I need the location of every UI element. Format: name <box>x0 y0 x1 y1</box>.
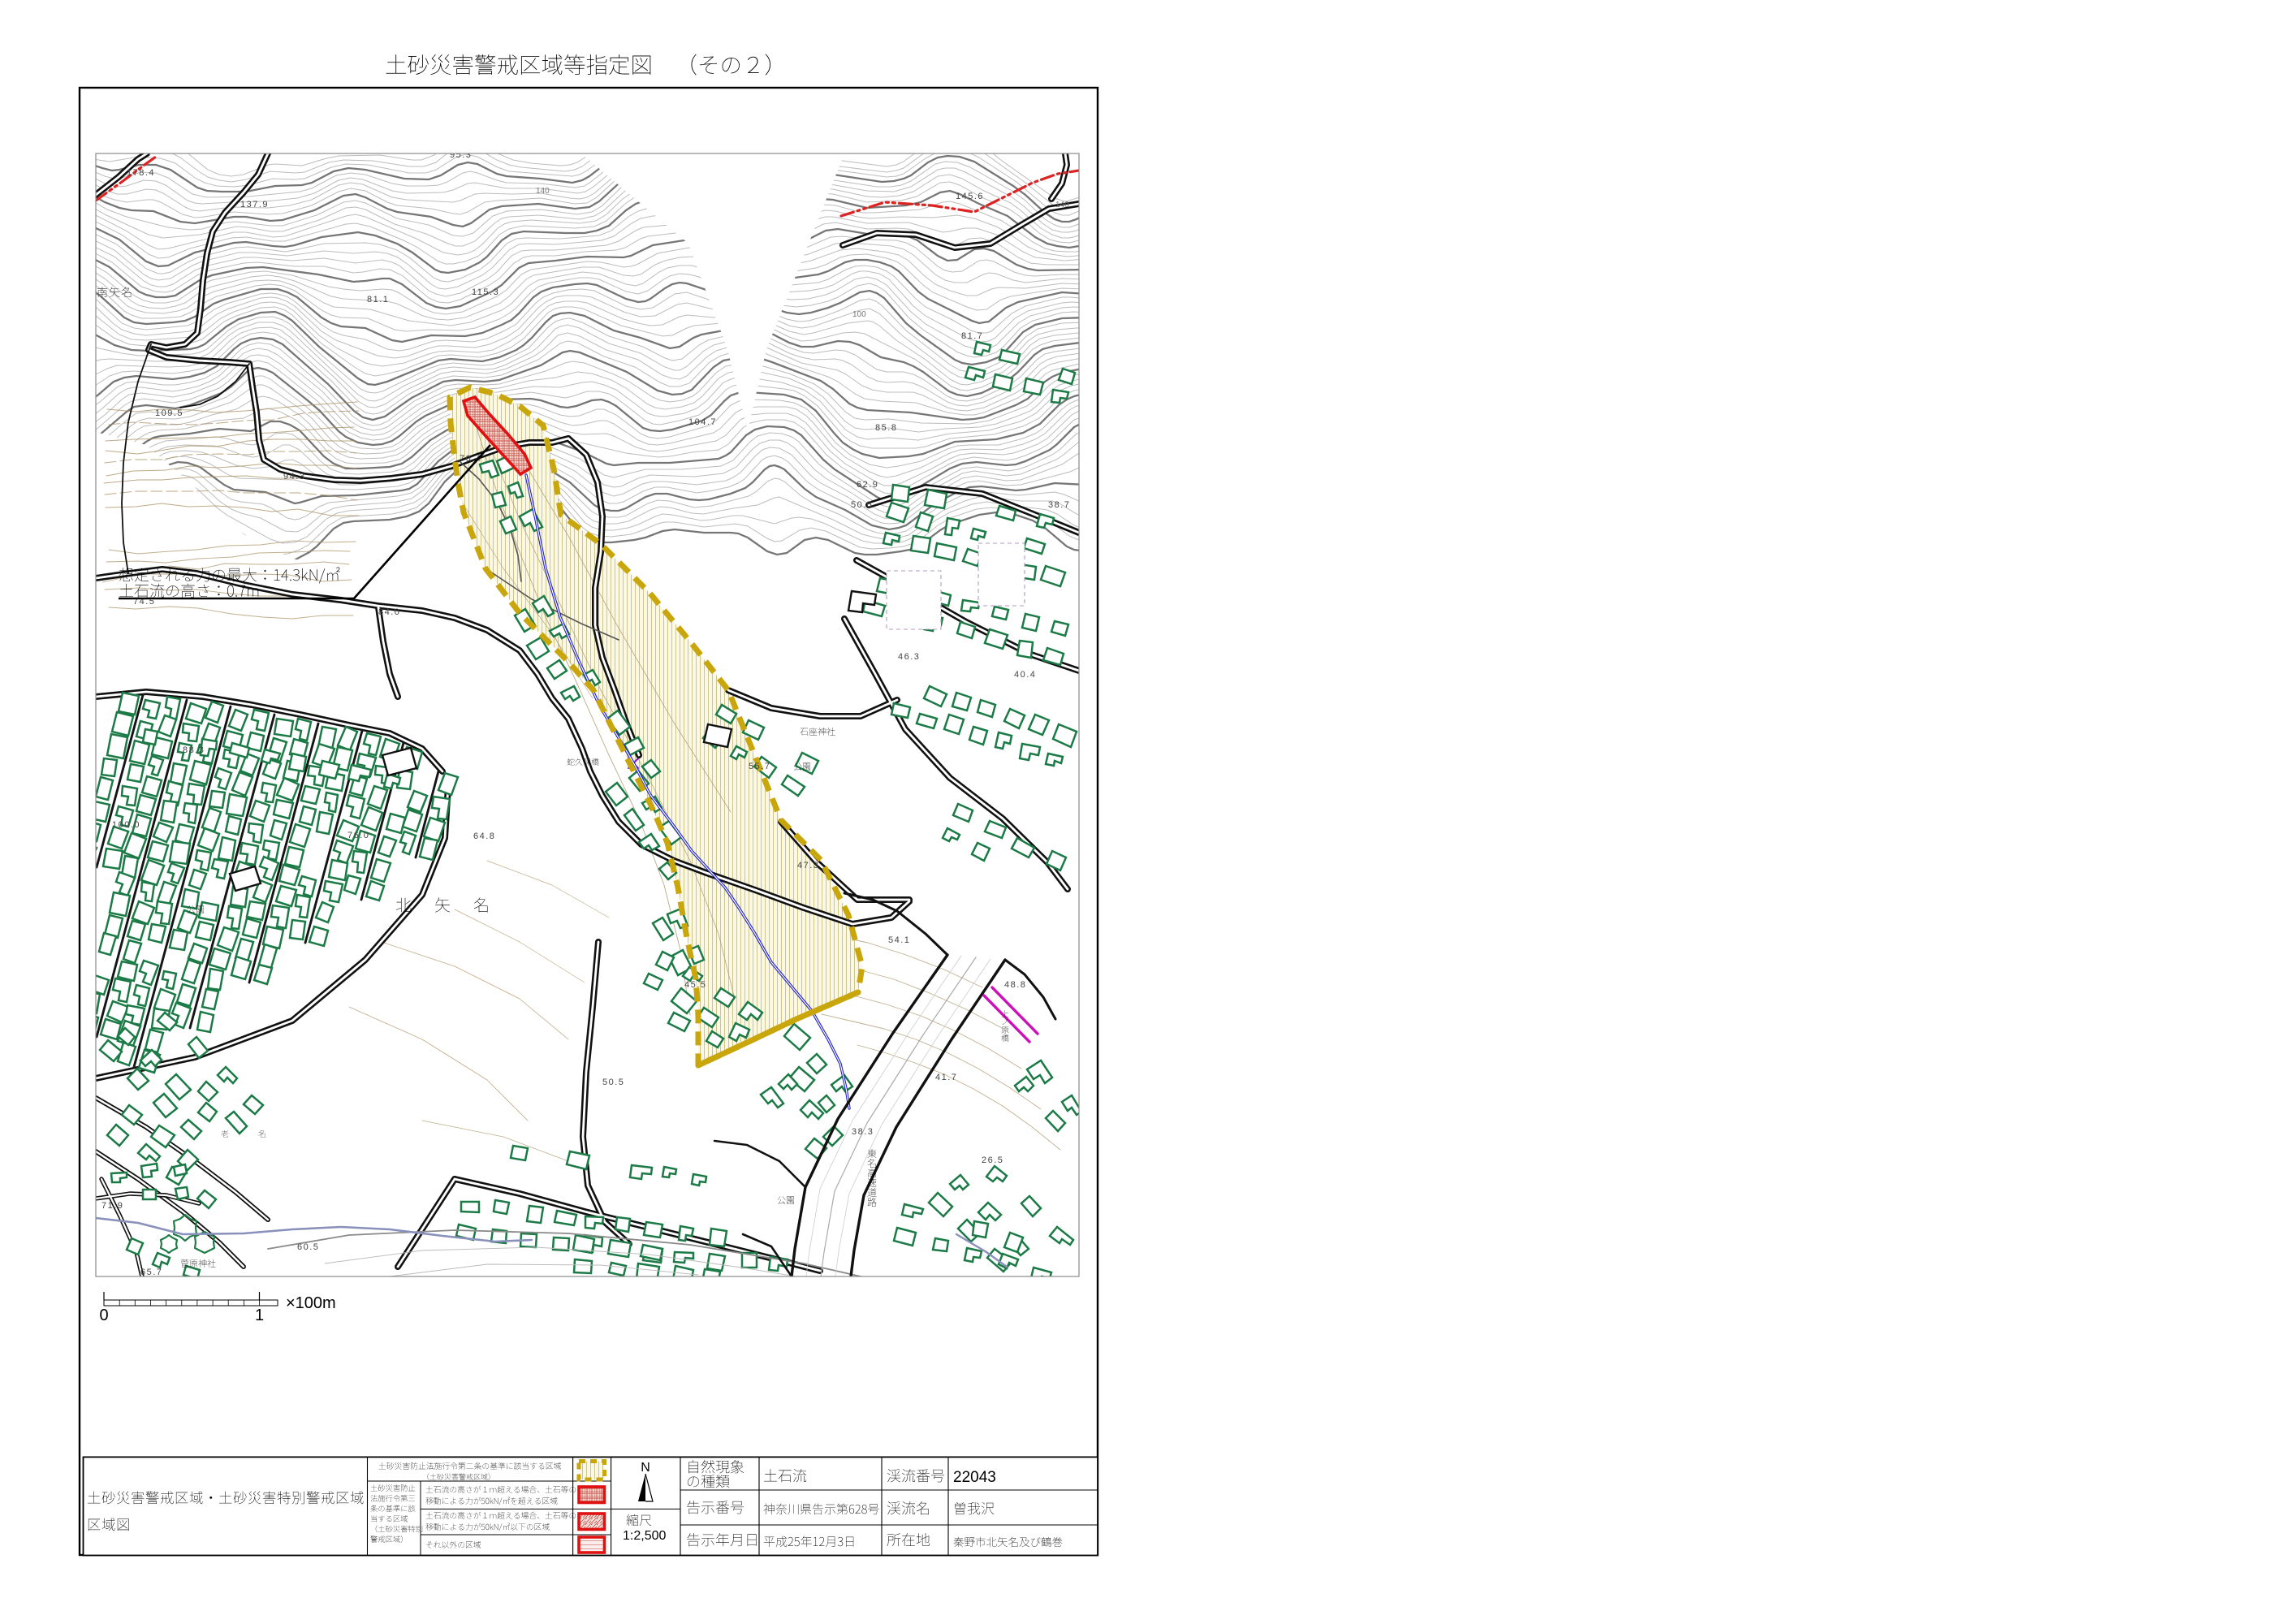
svg-text:54.1: 54.1 <box>888 935 910 945</box>
svg-text:62.9: 62.9 <box>857 480 878 490</box>
svg-text:88.3: 88.3 <box>183 745 205 755</box>
svg-text:38.7: 38.7 <box>1048 500 1070 510</box>
svg-text:100.0: 100.0 <box>112 820 140 830</box>
svg-text:76.0: 76.0 <box>347 831 369 840</box>
svg-text:60.5: 60.5 <box>297 1242 319 1252</box>
svg-text:81.1: 81.1 <box>367 295 389 304</box>
svg-text:85.8: 85.8 <box>875 423 897 433</box>
svg-text:22043: 22043 <box>953 1469 996 1486</box>
svg-text:178.4: 178.4 <box>127 168 155 178</box>
svg-text:109.5: 109.5 <box>155 408 183 418</box>
svg-text:81.7: 81.7 <box>961 331 983 341</box>
svg-text:1: 1 <box>255 1307 264 1324</box>
svg-text:50.5: 50.5 <box>851 500 873 510</box>
svg-text:64.8: 64.8 <box>473 831 495 841</box>
svg-text:100: 100 <box>852 310 866 319</box>
svg-text:140: 140 <box>536 187 550 196</box>
svg-text:94.3: 94.3 <box>283 472 305 482</box>
svg-text:46.3: 46.3 <box>898 652 920 662</box>
svg-text:50.5: 50.5 <box>602 1078 624 1087</box>
svg-text:104.7: 104.7 <box>688 417 717 427</box>
svg-text:140: 140 <box>1055 201 1069 209</box>
svg-text:41.7: 41.7 <box>935 1073 957 1082</box>
svg-text:48.8: 48.8 <box>1004 980 1026 990</box>
svg-text:137.9: 137.9 <box>240 200 269 209</box>
svg-text:65.7: 65.7 <box>140 1268 162 1277</box>
svg-text:40.4: 40.4 <box>1014 670 1036 680</box>
svg-text:115.3: 115.3 <box>472 287 499 297</box>
svg-text:71.9: 71.9 <box>101 1201 123 1211</box>
svg-text:47.3: 47.3 <box>797 861 819 870</box>
svg-text:45.5: 45.5 <box>684 980 706 990</box>
svg-text:145.6: 145.6 <box>956 192 984 201</box>
svg-text:1:2,500: 1:2,500 <box>623 1529 666 1543</box>
svg-text:26.5: 26.5 <box>982 1155 1003 1165</box>
svg-text:N: N <box>641 1461 650 1475</box>
svg-text:38.3: 38.3 <box>852 1127 874 1137</box>
svg-text:0: 0 <box>99 1307 108 1324</box>
svg-text:84.0: 84.0 <box>378 607 400 617</box>
svg-text:55.7: 55.7 <box>749 762 770 771</box>
svg-text:×100m: ×100m <box>286 1294 336 1312</box>
